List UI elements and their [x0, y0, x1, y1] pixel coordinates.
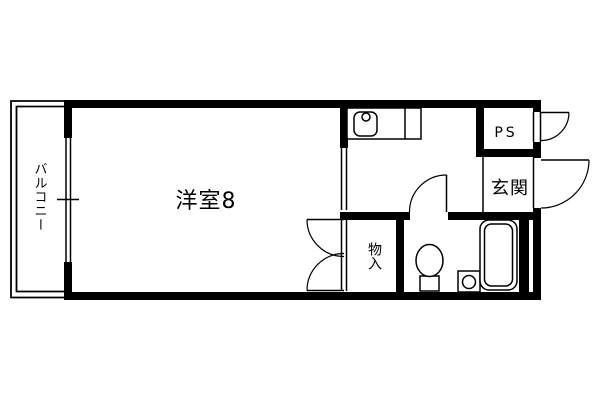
ps-door-icon	[541, 113, 569, 141]
wall-hall-washroom-right	[448, 212, 541, 220]
bathtub-inner	[485, 224, 513, 286]
closet-opening-jamb	[342, 220, 347, 291]
wall-closet-washroom	[396, 220, 404, 292]
balcony-label: バルコニー	[32, 162, 48, 232]
entrance-door-icon	[541, 160, 589, 208]
labels: バルコニー 洋室8 PS 玄関 物入	[32, 125, 530, 270]
wall-top	[64, 100, 541, 108]
entrance-label: 玄関	[491, 178, 529, 199]
bathroom-door-icon	[410, 175, 447, 212]
closet-label: 物入	[366, 242, 382, 270]
wall-left-lower	[64, 262, 72, 300]
closet-double-door-icon	[307, 220, 344, 291]
floorplan-page: バルコニー 洋室8 PS 玄関 物入	[0, 0, 600, 400]
pipe-space-label: PS	[494, 125, 517, 141]
washbasin-bowl	[463, 276, 476, 289]
wall-left-upper	[64, 100, 72, 138]
wall-bathroom-east-pipe-chase	[519, 220, 529, 292]
ps-door-jamb	[534, 112, 541, 142]
bathroom	[416, 220, 517, 292]
walls	[64, 100, 541, 300]
kitchen	[347, 108, 421, 139]
wall-ps-bottom	[476, 149, 541, 157]
wall-right-mid	[533, 142, 541, 158]
toilet-tank	[420, 276, 439, 291]
faucet-icon	[362, 113, 370, 121]
openings	[57, 112, 541, 291]
floorplan-drawing: バルコニー 洋室8 PS 玄関 物入	[0, 0, 600, 400]
toilet-icon	[416, 245, 443, 277]
main-room-label: 洋室8	[176, 189, 237, 214]
wall-hall-washroom-left	[340, 212, 410, 220]
wall-bottom	[64, 292, 541, 300]
wall-right-lower	[533, 208, 541, 300]
room-hall-opening-icon	[342, 148, 347, 210]
wall-right-top	[533, 100, 541, 112]
